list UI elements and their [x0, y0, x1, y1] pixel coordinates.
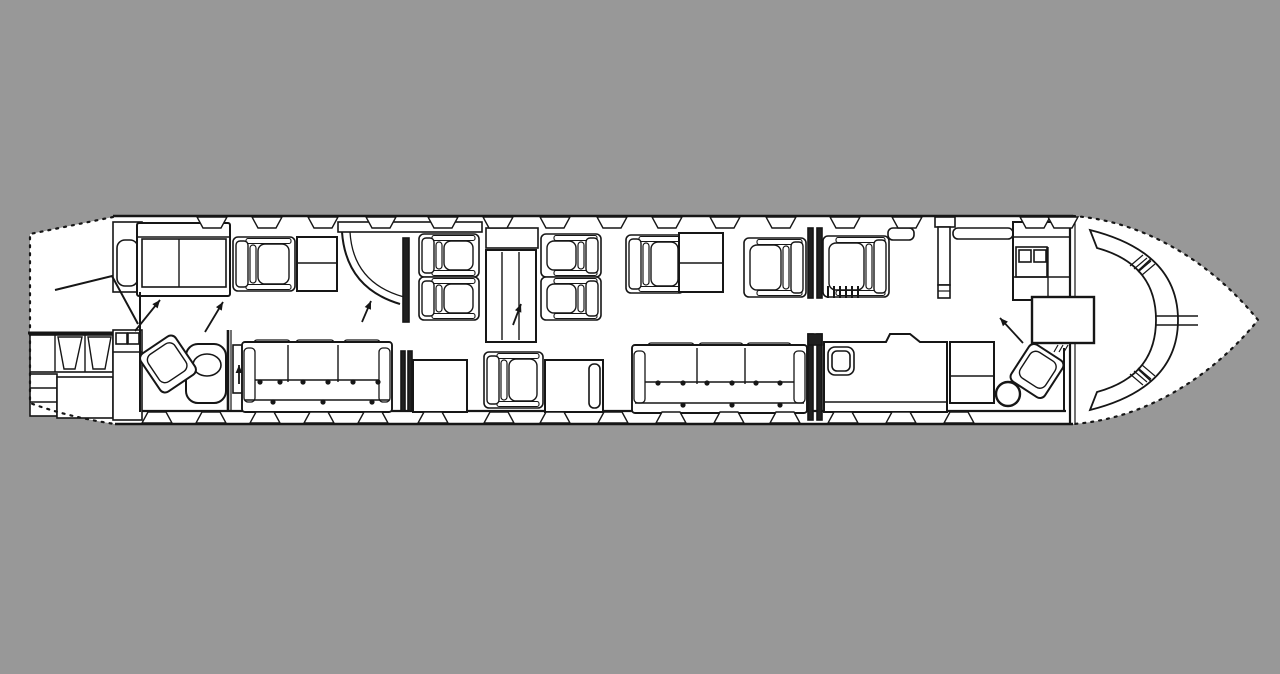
cabin-window-bottom-14 [886, 412, 916, 423]
galley-partition-bar-2 [817, 334, 822, 420]
fwd-divan-armrest-left [634, 351, 645, 403]
floor-plan-canvas [0, 0, 1280, 674]
fwd-single-seat-front-cushion [829, 243, 864, 290]
aft-divan-front-dot-3 [325, 379, 330, 384]
aft-divan-front-dot-4 [350, 379, 355, 384]
cabin-window-bottom-10 [656, 412, 686, 423]
fwd-single-seat-aft-back [629, 239, 641, 289]
fwd-single-seat-front-back [874, 240, 886, 293]
fwd-single-seat-front [823, 236, 889, 297]
cabin-window-bottom-2 [196, 412, 226, 423]
club-seat-fwd-outboard-headrest [578, 242, 584, 269]
aft-divan-back-dot-1 [320, 399, 325, 404]
cabin-window-top-15 [1048, 217, 1078, 228]
fwd-divan [632, 343, 807, 413]
cabin-window-bottom-11 [714, 412, 744, 423]
aft-club-seat-back [236, 241, 248, 287]
pocket-door-track [403, 238, 409, 322]
fwd-divan-front-dot-5 [777, 380, 782, 385]
cabin-window-top-7 [540, 217, 570, 228]
fwd-single-seat-aft-headrest [643, 243, 649, 285]
aft-tall-cabinet-cushion [117, 240, 138, 286]
mid-single-seat-armrest-top [497, 354, 539, 359]
fwd-single-seat-aft-armrest-bottom [639, 287, 680, 292]
cabin-window-bottom-3 [250, 412, 280, 423]
mid-partition-bar-1 [401, 351, 405, 411]
aft-club-seat-armrest-bottom [246, 285, 291, 290]
entry-door-panel [1032, 297, 1094, 343]
aft-divan-front-dot-5 [375, 379, 380, 384]
aft-divan-back-dot-0 [270, 399, 275, 404]
cabin-window-bottom-7 [484, 412, 514, 423]
conference-table-ledge [486, 228, 538, 248]
aft-divan-front-dot-2 [300, 379, 305, 384]
mid-single-seat-armrest-bottom [497, 402, 539, 407]
mid-cabinet-slot [589, 364, 600, 408]
club-seat-aft-inboard-headrest [436, 285, 442, 312]
club-seat-aft-inboard-back [422, 281, 434, 316]
club-seat-fwd-inboard-headrest [578, 285, 584, 312]
aft-divan-armrest-left [244, 348, 255, 402]
fwd-divan-front-dot-0 [655, 380, 660, 385]
cabin-window-top-1 [197, 217, 227, 228]
aft-divan-front-dot-0 [257, 379, 262, 384]
club-seat-aft-outboard-armrest-bottom [432, 271, 475, 276]
club-seat-fwd-outboard-cushion [547, 241, 576, 270]
cabin-window-top-12 [830, 217, 860, 228]
cabin-window-bottom-9 [598, 412, 628, 423]
cabin-window-bottom-8 [540, 412, 570, 423]
club-seat-fwd-outboard [541, 234, 601, 277]
fwd-divan-front-dot-2 [704, 380, 709, 385]
fwd-divan-back-dot-2 [777, 402, 782, 407]
cabin-window-bottom-12 [770, 412, 800, 423]
aft-club-seat [233, 237, 295, 291]
galley-partition-bar-1 [808, 334, 813, 420]
club-seat-aft-inboard-cushion [444, 284, 473, 313]
galley-partition-cap [808, 334, 822, 345]
cabin-window-top-9 [652, 217, 682, 228]
galley-grid-box-1 [1019, 250, 1031, 262]
fwd-divan-armrest-right [794, 351, 805, 403]
cabin-window-bottom-4 [304, 412, 334, 423]
aft-divan-front-dot-1 [277, 379, 282, 384]
aft-club-seat-cushion [258, 244, 289, 284]
cabin-window-top-10 [710, 217, 740, 228]
aft-cabinet-lower-left [57, 377, 113, 418]
fwd-single-seat-mid [744, 238, 806, 297]
cabin-window-top-3 [308, 217, 338, 228]
fwd-divan-front-dot-3 [729, 380, 734, 385]
cabin-window-bottom-5 [358, 412, 388, 423]
fwd-single-seat-aft-armrest-top [639, 237, 680, 242]
galley-sink-basin [832, 351, 850, 371]
club-seat-fwd-inboard [541, 277, 601, 320]
club-seat-aft-outboard-armrest-top [432, 236, 475, 241]
club-seat-fwd-inboard-back [586, 281, 598, 316]
fwd-sidewall-ledge [953, 228, 1013, 239]
fwd-divan-front-dot-1 [680, 380, 685, 385]
cabin-window-top-14 [1020, 217, 1050, 228]
mid-partition-bar-2 [408, 351, 412, 411]
club-seat-aft-outboard-cushion [444, 241, 473, 270]
aft-club-seat-headrest [250, 245, 256, 283]
club-seat-aft-outboard-headrest [436, 242, 442, 269]
fwd-single-seat-mid-cushion [750, 245, 781, 290]
club-seat-fwd-inboard-cushion [547, 284, 576, 313]
crew-toilet [996, 382, 1020, 406]
fwd-divan-back-dot-1 [729, 402, 734, 407]
aft-divan-armrest-right [379, 348, 390, 402]
aft-lower-cabinet-box-2 [128, 333, 139, 344]
galley-grid-box-2 [1034, 250, 1046, 262]
fwd-single-seat-aft-cushion [651, 242, 678, 286]
aft-club-seat-armrest-top [246, 239, 291, 244]
conference-table [486, 250, 536, 342]
fwd-bulkhead [938, 227, 950, 285]
cabin-window-top-5 [428, 217, 458, 228]
galley-counter-right [950, 342, 994, 403]
club-seat-aft-inboard [419, 277, 479, 320]
fwd-single-seat-front-headrest [866, 244, 872, 289]
cabin-window-bottom-13 [828, 412, 858, 423]
mid-cabinet-aft [413, 360, 467, 412]
cabin-window-top-6 [483, 217, 513, 228]
aft-lower-cabinet-box-1 [116, 333, 127, 344]
fwd-divan-front-dot-4 [753, 380, 758, 385]
aft-side-table [297, 237, 337, 291]
cabin-window-bottom-6 [418, 412, 448, 423]
fwd-single-seat-mid-back [791, 242, 803, 293]
aft-shelf-stack [30, 374, 57, 416]
cabin-window-top-11 [766, 217, 796, 228]
club-seat-aft-outboard [419, 234, 479, 277]
cabin-window-top-13 [892, 217, 922, 228]
fwd-single-seat-mid-headrest [783, 246, 789, 289]
mid-single-seat-back [487, 356, 499, 404]
fwd-single-seat-aft [626, 235, 684, 293]
aft-divan [242, 340, 392, 412]
aft-divan-back-dot-2 [369, 399, 374, 404]
cabin-window-top-8 [597, 217, 627, 228]
mid-single-seat-cushion [509, 359, 537, 401]
aft-toilet-bowl [193, 354, 221, 376]
mid-single-seat [484, 352, 543, 408]
club-seat-aft-inboard-armrest-bottom [432, 314, 475, 319]
cabin-partition-bar-1 [808, 228, 813, 298]
mid-closet-ledge [338, 222, 482, 232]
aft-wardrobe [30, 335, 113, 372]
cabin-window-top-2 [252, 217, 282, 228]
club-seat-aft-outboard-back [422, 238, 434, 273]
cabin-window-bottom-1 [142, 412, 172, 423]
fwd-bulkhead-cap [935, 217, 955, 227]
cabin-window-top-4 [366, 217, 396, 228]
cabin-partition-bar-2 [817, 228, 822, 298]
cabin-floor-plan-drawing [0, 0, 1280, 674]
club-seat-fwd-outboard-back [586, 238, 598, 273]
club-seat-aft-inboard-armrest-top [432, 279, 475, 284]
cabin-window-bottom-15 [944, 412, 974, 423]
mid-single-seat-headrest [501, 360, 507, 400]
window-ledge-small [888, 228, 914, 240]
fwd-divan-back-dot-0 [680, 402, 685, 407]
aft-sofa-cushions [142, 239, 226, 287]
